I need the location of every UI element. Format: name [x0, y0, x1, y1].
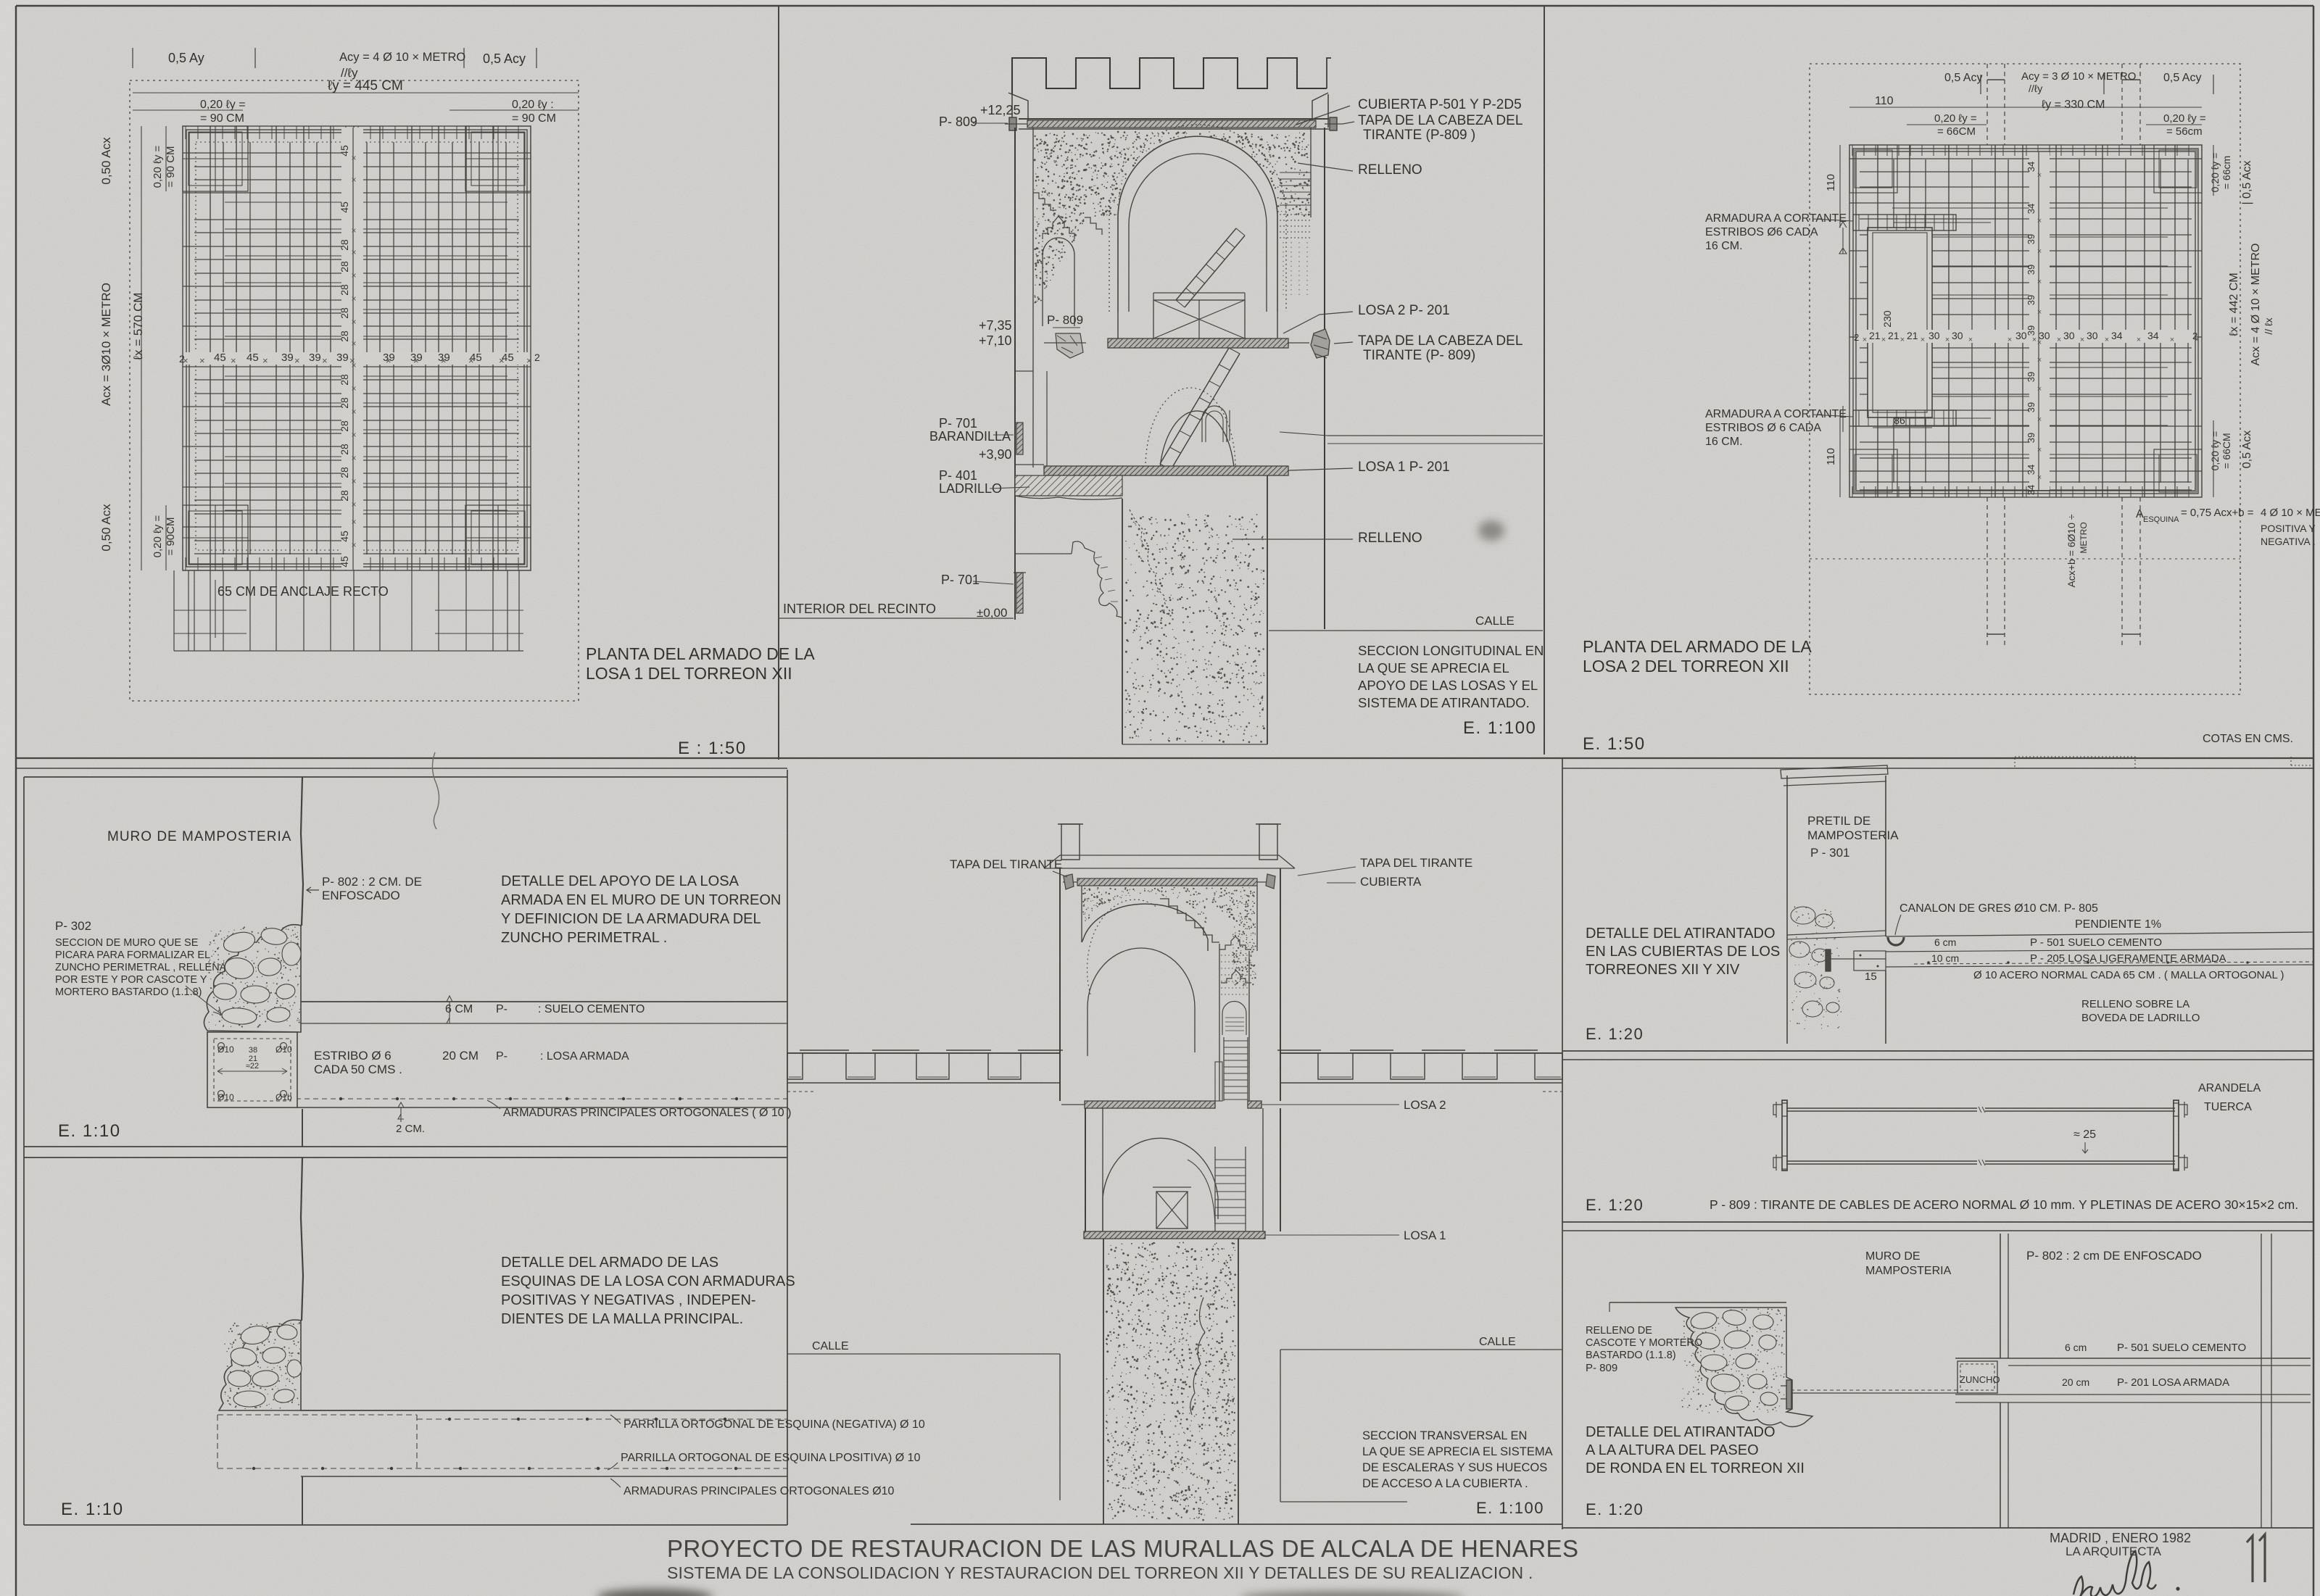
- svg-text:0,20 ℓy =: 0,20 ℓy =: [2163, 112, 2206, 125]
- svg-text:= 66CM: = 66CM: [1937, 125, 1976, 138]
- svg-text:DETALLE DEL ATIRANTADO: DETALLE DEL ATIRANTADO: [1586, 926, 1776, 942]
- svg-text:110: 110: [1825, 448, 1837, 465]
- svg-text:45: 45: [339, 145, 350, 157]
- svg-text:±0,00: ±0,00: [977, 606, 1007, 620]
- svg-text:≈ 25: ≈ 25: [2073, 1129, 2096, 1141]
- svg-text:CUBIERTA P-501 Y P-2D5: CUBIERTA P-501 Y P-2D5: [1358, 97, 1522, 112]
- svg-text:= 90 CM: = 90 CM: [512, 112, 556, 125]
- svg-text:DETALLE DEL APOYO DE LA L: DETALLE DEL APOYO DE LA LOSA: [501, 873, 739, 889]
- svg-text:0,5 Acy: 0,5 Acy: [483, 51, 526, 66]
- svg-text:×: ×: [2037, 217, 2042, 225]
- svg-text:TAPA DEL TIRANTE: TAPA DEL TIRANTE: [1360, 856, 1472, 870]
- svg-text:BOVEDA DE LADRILLO: BOVEDA DE LADRILLO: [2081, 1012, 2200, 1024]
- svg-text:2: 2: [534, 352, 540, 363]
- svg-text:0,20 ℓy =: 0,20 ℓy =: [2209, 431, 2221, 471]
- svg-text:×: ×: [1881, 336, 1886, 344]
- svg-text:RELLENO: RELLENO: [1358, 531, 1422, 546]
- svg-text:P - 301: P - 301: [1810, 846, 1850, 860]
- svg-text:PARRILLA ORTOGONAL DE ESQUI: PARRILLA ORTOGONAL DE ESQUINA (NEGATIVA)…: [623, 1418, 925, 1431]
- svg-text:PICARA PARA FORMALIZAR EL: PICARA PARA FORMALIZAR EL: [55, 949, 210, 961]
- svg-text:SECCION DE MURO QUE SE: SECCION DE MURO QUE SE: [55, 937, 199, 949]
- svg-text:28: 28: [339, 420, 350, 432]
- svg-text:45: 45: [214, 352, 226, 364]
- svg-text:APOYO DE LAS LOSAS Y EL: APOYO DE LAS LOSAS Y EL: [1358, 678, 1538, 693]
- svg-text:EN LAS CUBIERTAS DE LOS: EN LAS CUBIERTAS DE LOS: [1586, 944, 1780, 960]
- svg-text:20 CM: 20 CM: [442, 1049, 478, 1063]
- svg-text:METRO: METRO: [2079, 522, 2089, 553]
- svg-text:E. 1:20: E. 1:20: [1586, 1025, 1644, 1043]
- svg-text:Y DEFINICION DE LA ARMADUR: Y DEFINICION DE LA ARMADURA DEL: [501, 911, 761, 927]
- svg-text:ESQUINAS DE LA LOSA CON A: ESQUINAS DE LA LOSA CON ARMADURAS: [501, 1273, 795, 1289]
- svg-text:21: 21: [1869, 330, 1881, 341]
- svg-text:= 66cm: = 66cm: [2221, 156, 2232, 189]
- svg-text:×: ×: [1900, 336, 1905, 344]
- svg-text:0,5 Acy: 0,5 Acy: [1944, 72, 1982, 84]
- svg-text:×: ×: [2037, 473, 2042, 482]
- svg-text:45: 45: [246, 352, 259, 364]
- svg-text:ESTRIBO Ø 6: ESTRIBO Ø 6: [314, 1049, 391, 1063]
- svg-text:P-: P-: [496, 1003, 507, 1015]
- svg-text:Ø1b: Ø1b: [275, 1092, 292, 1102]
- svg-text:ℓx = 442 CM: ℓx = 442 CM: [2228, 273, 2240, 336]
- svg-text:×: ×: [2037, 385, 2042, 394]
- svg-text:PARRILLA ORTOGONAL DE ESQUI: PARRILLA ORTOGONAL DE ESQUINA LPOSITIVA)…: [621, 1452, 921, 1464]
- svg-text:30: 30: [2063, 330, 2075, 341]
- svg-text:Ø 10 ACERO NORMAL CADA 65: Ø 10 ACERO NORMAL CADA 65 CM . ( MALLA O…: [1973, 969, 2284, 981]
- svg-text:SISTEMA DE ATIRANTADO.: SISTEMA DE ATIRANTADO.: [1358, 695, 1530, 710]
- svg-text:45: 45: [339, 531, 350, 542]
- svg-text:×: ×: [1945, 336, 1950, 344]
- svg-text:39: 39: [2026, 265, 2037, 275]
- svg-text:POR ESTE Y POR CASCOTE Y: POR ESTE Y POR CASCOTE Y: [55, 974, 207, 986]
- svg-text:0,20 ℓy =: 0,20 ℓy =: [1934, 112, 1977, 125]
- svg-text:ℓy = 330 CM: ℓy = 330 CM: [2042, 99, 2105, 111]
- svg-text:×: ×: [2008, 336, 2012, 344]
- svg-text:DIENTES DE LA MALLA PRINCI: DIENTES DE LA MALLA PRINCIPAL.: [501, 1311, 743, 1327]
- svg-text:PLANTA DEL ARMADO DE LA: PLANTA DEL ARMADO DE LA: [586, 644, 815, 663]
- svg-text:+7,10: +7,10: [979, 333, 1012, 348]
- svg-text:ARMADURA A CORTANTE: ARMADURA A CORTANTE: [1705, 212, 1847, 225]
- svg-text:45: 45: [339, 201, 350, 213]
- svg-text:×: ×: [351, 540, 356, 550]
- svg-text:34: 34: [2026, 465, 2037, 475]
- svg-text:P- 809: P- 809: [1047, 313, 1083, 327]
- svg-text:DETALLE DEL ARMADO DE LAS: DETALLE DEL ARMADO DE LAS: [501, 1255, 718, 1271]
- svg-text:2: 2: [1854, 332, 1859, 343]
- svg-text:TIRANTE (P- 809): TIRANTE (P- 809): [1363, 348, 1475, 363]
- svg-text:P - 205 LOSA LIGERAMENTE: P - 205 LOSA LIGERAMENTE ARMADA: [2030, 952, 2226, 965]
- svg-text:Acy = 3 Ø 10 × METRO: Acy = 3 Ø 10 × METRO: [2021, 70, 2136, 83]
- svg-text:E. 1:10: E. 1:10: [61, 1500, 124, 1519]
- svg-text:×: ×: [2032, 336, 2037, 344]
- svg-text:×: ×: [1921, 336, 1925, 344]
- svg-text:CALLE: CALLE: [1475, 614, 1515, 628]
- svg-text:×: ×: [351, 453, 356, 463]
- svg-text:SECCION LONGITUDINAL EN: SECCION LONGITUDINAL EN: [1358, 643, 1544, 658]
- svg-text:30: 30: [1928, 330, 1940, 341]
- svg-text:E. 1:50: E. 1:50: [1583, 734, 1646, 754]
- svg-text:39: 39: [2026, 295, 2037, 305]
- svg-text:28: 28: [339, 239, 350, 251]
- svg-text:×: ×: [351, 430, 356, 440]
- svg-text:P- 802 : 2 CM. DE: P- 802 : 2 CM. DE: [322, 875, 422, 889]
- svg-text:ARMADA EN EL MURO DE UN T: ARMADA EN EL MURO DE UN TORREON: [501, 892, 781, 908]
- svg-text:×: ×: [2080, 336, 2084, 344]
- svg-text:+7,35: +7,35: [979, 318, 1012, 333]
- svg-text:BARANDILLA: BARANDILLA: [929, 429, 1011, 444]
- svg-text:Ø10: Ø10: [275, 1044, 292, 1055]
- svg-text:0,50 Acx: 0,50 Acx: [99, 137, 113, 185]
- svg-text:DE ACCESO A LA CUBIERTA .: DE ACCESO A LA CUBIERTA .: [1362, 1477, 1528, 1490]
- svg-text:28: 28: [339, 261, 350, 273]
- svg-text:×: ×: [2037, 308, 2042, 317]
- svg-text:×: ×: [351, 270, 356, 280]
- svg-text:RELLENO: RELLENO: [1358, 162, 1422, 178]
- svg-text:E : 1:50: E : 1:50: [678, 739, 747, 758]
- svg-text:LOSA 2 DEL TORREON XII: LOSA 2 DEL TORREON XII: [1583, 657, 1789, 676]
- svg-text:×: ×: [2037, 171, 2042, 180]
- svg-text:28: 28: [339, 444, 350, 455]
- svg-text:TAPA DE LA CABEZA DEL: TAPA DE LA CABEZA DEL: [1358, 113, 1522, 128]
- svg-text:0,20 ℓy :: 0,20 ℓy :: [512, 99, 554, 111]
- svg-text:4 Ø 10 × METRO: 4 Ø 10 × METRO: [2261, 507, 2320, 519]
- svg-text:×: ×: [468, 355, 474, 366]
- svg-text:34: 34: [2026, 485, 2037, 495]
- svg-text:ARMADURAS PRINCIPALES ORTOG: ARMADURAS PRINCIPALES ORTOGONALES ( Ø 10…: [503, 1107, 791, 1119]
- svg-text:INTERIOR DEL RECINTO: INTERIOR DEL RECINTO: [783, 602, 936, 616]
- svg-text:CUBIERTA: CUBIERTA: [1360, 875, 1422, 889]
- svg-text:= 56cm: = 56cm: [2166, 125, 2203, 138]
- svg-text:30: 30: [1952, 330, 1963, 341]
- svg-text:×: ×: [351, 383, 356, 394]
- svg-text:= 90 CM: = 90 CM: [165, 146, 177, 187]
- svg-text:×: ×: [499, 355, 505, 366]
- svg-text:E. 1:10: E. 1:10: [58, 1121, 121, 1141]
- svg-text:MAMPOSTERIA: MAMPOSTERIA: [1807, 828, 1899, 842]
- svg-text:POSITIVA Y: POSITIVA Y: [2261, 523, 2316, 534]
- svg-text:0,5 Ay: 0,5 Ay: [168, 51, 204, 65]
- svg-text:NEGATIVA .: NEGATIVA .: [2261, 536, 2316, 547]
- svg-text:×: ×: [351, 407, 356, 417]
- svg-text:ESTRIBOS Ø 6 CADA: ESTRIBOS Ø 6 CADA: [1705, 422, 1821, 434]
- svg-text:×: ×: [1863, 336, 1867, 344]
- svg-text:Acx+b = 6Ø10 ÷: Acx+b = 6Ø10 ÷: [2066, 514, 2077, 587]
- svg-text:30: 30: [2087, 330, 2098, 341]
- svg-text:×: ×: [2137, 336, 2141, 344]
- svg-text:28: 28: [339, 490, 350, 502]
- svg-text:39: 39: [2026, 234, 2037, 244]
- svg-text:39: 39: [2026, 372, 2037, 382]
- svg-text:+3,90: +3,90: [979, 447, 1012, 462]
- svg-text:P - 809 : TIRANTE DE CABLE: P - 809 : TIRANTE DE CABLES DE ACERO NOR…: [1710, 1197, 2298, 1212]
- svg-text:×: ×: [231, 355, 236, 366]
- svg-text:28: 28: [339, 284, 350, 296]
- svg-text:39: 39: [281, 352, 294, 364]
- svg-text:Acx = 3Ø10 × METRO: Acx = 3Ø10 × METRO: [99, 283, 113, 406]
- svg-text:ESTRIBOS Ø6 CADA: ESTRIBOS Ø6 CADA: [1705, 226, 1818, 238]
- svg-text:110: 110: [1875, 95, 1894, 107]
- svg-text:0,5 Acx: 0,5 Acx: [2241, 431, 2253, 468]
- svg-text:110: 110: [1825, 174, 1837, 191]
- svg-text:MURO DE MAMPOSTERIA: MURO DE MAMPOSTERIA: [107, 829, 291, 844]
- svg-text:×: ×: [2037, 415, 2042, 424]
- svg-text:×: ×: [2057, 336, 2061, 344]
- svg-text:LOSA 1: LOSA 1: [1404, 1229, 1446, 1242]
- svg-text:CANALON DE GRES Ø10 CM. P: CANALON DE GRES Ø10 CM. P- 805: [1899, 902, 2098, 915]
- svg-text:0,20 ℓy =: 0,20 ℓy =: [2209, 153, 2221, 193]
- svg-text:0,50 Acx: 0,50 Acx: [99, 504, 113, 552]
- svg-text:34: 34: [2111, 330, 2123, 341]
- svg-text:6 cm: 6 cm: [1934, 936, 1956, 948]
- svg-text:LA QUE SE APRECIA EL SIST: LA QUE SE APRECIA EL SISTEMA: [1362, 1445, 1553, 1458]
- svg-text:28: 28: [339, 307, 350, 319]
- svg-text:E. 1:100: E. 1:100: [1476, 1499, 1544, 1517]
- svg-text:LOSA 2 P- 201: LOSA 2 P- 201: [1358, 303, 1450, 318]
- svg-text:PLANTA DEL ARMADO DE LA: PLANTA DEL ARMADO DE LA: [1583, 637, 1812, 656]
- svg-text:28: 28: [339, 331, 350, 342]
- svg-text:34: 34: [2026, 204, 2037, 214]
- svg-text:CALLE: CALLE: [1479, 1336, 1516, 1348]
- svg-text:= 90 CM: = 90 CM: [200, 112, 244, 125]
- svg-text:P- 701: P- 701: [941, 573, 979, 587]
- svg-text:LOSA 2: LOSA 2: [1404, 1098, 1446, 1112]
- svg-text:Ø10: Ø10: [217, 1092, 234, 1102]
- svg-text:×: ×: [183, 355, 188, 366]
- svg-text:= 0,75 Acx+b =: = 0,75 Acx+b =: [2181, 507, 2254, 519]
- svg-text:CADA 50 CMS .: CADA 50 CMS .: [314, 1063, 402, 1076]
- svg-text:P- 701: P- 701: [939, 416, 977, 431]
- svg-text:P- 302: P- 302: [55, 919, 91, 933]
- svg-text:ℓy = 445 CM: ℓy = 445 CM: [328, 78, 403, 93]
- svg-text:SECCION TRANSVERSAL EN: SECCION TRANSVERSAL EN: [1362, 1429, 1527, 1442]
- svg-text:Acx = 4 Ø 10 × METRO: Acx = 4 Ø 10 × METRO: [2250, 244, 2262, 366]
- svg-text:×: ×: [2170, 336, 2174, 344]
- svg-text:ZUNCHO PERIMETRAL .: ZUNCHO PERIMETRAL .: [501, 930, 667, 946]
- svg-text:45: 45: [339, 556, 350, 568]
- svg-text:MORTERO BASTARDO (1.1.8): MORTERO BASTARDO (1.1.8): [55, 986, 202, 998]
- svg-text:10 cm: 10 cm: [1931, 952, 1959, 964]
- svg-text:×: ×: [351, 175, 356, 185]
- svg-text:×: ×: [2037, 356, 2042, 365]
- svg-text:// ℓx: // ℓx: [2263, 317, 2274, 334]
- svg-text:21: 21: [1888, 330, 1899, 341]
- svg-text:LOSA 1 P- 201: LOSA 1 P- 201: [1358, 460, 1450, 475]
- svg-text:×: ×: [351, 294, 356, 304]
- svg-text:×: ×: [351, 225, 356, 236]
- svg-text:39: 39: [2026, 402, 2037, 412]
- svg-text:16 CM.: 16 CM.: [1705, 436, 1743, 448]
- svg-text:×: ×: [526, 355, 532, 366]
- svg-text:TORREONES XII Y XIV: TORREONES XII Y XIV: [1586, 962, 1740, 978]
- svg-text:28: 28: [339, 467, 350, 478]
- svg-text://ℓy: //ℓy: [2029, 83, 2042, 94]
- svg-text:×: ×: [199, 355, 205, 366]
- svg-text:DE ESCALERAS Y SUS HUECOS: DE ESCALERAS Y SUS HUECOS: [1362, 1461, 1547, 1474]
- svg-text:×: ×: [2195, 336, 2199, 344]
- svg-text:P - 501 SUELO CEMENTO: P - 501 SUELO CEMENTO: [2030, 936, 2162, 949]
- svg-text:0,20 ℓy =: 0,20 ℓy =: [152, 515, 164, 557]
- svg-text:×: ×: [351, 317, 356, 327]
- svg-text:34: 34: [2147, 330, 2159, 341]
- svg-text:×: ×: [2037, 446, 2042, 454]
- svg-text:PRETIL DE: PRETIL DE: [1807, 814, 1870, 828]
- svg-text:16 CM.: 16 CM.: [1705, 240, 1743, 252]
- svg-text:×: ×: [1968, 336, 1973, 344]
- svg-text:LA QUE SE APRECIA EL: LA QUE SE APRECIA EL: [1358, 660, 1509, 676]
- svg-text:6 CM: 6 CM: [445, 1003, 473, 1015]
- svg-text:ENFOSCADO: ENFOSCADO: [322, 889, 400, 902]
- svg-text:×: ×: [294, 355, 300, 366]
- svg-text:TIRANTE (P-809 ): TIRANTE (P-809 ): [1363, 128, 1475, 143]
- svg-text:RELLENO SOBRE LA: RELLENO SOBRE LA: [2081, 998, 2189, 1010]
- svg-text:×: ×: [413, 355, 419, 366]
- svg-text:×: ×: [386, 355, 391, 366]
- svg-text:LOSA 1 DEL TORREON XII: LOSA 1 DEL TORREON XII: [586, 664, 792, 683]
- svg-text:×: ×: [262, 355, 268, 366]
- svg-text:2 CM.: 2 CM.: [396, 1123, 425, 1135]
- svg-text:×: ×: [351, 499, 356, 510]
- svg-text:P- 401: P- 401: [939, 468, 977, 483]
- svg-text:E. 1:20: E. 1:20: [1586, 1196, 1644, 1214]
- svg-text:×: ×: [351, 247, 356, 257]
- svg-text:: SUELO CEMENTO: : SUELO CEMENTO: [538, 1003, 645, 1015]
- svg-text:POSITIVAS Y NEGATIVAS , INDE: POSITIVAS Y NEGATIVAS , INDEPEN-: [501, 1292, 756, 1308]
- svg-text:≈22: ≈22: [246, 1062, 259, 1071]
- svg-text:TUERCA: TUERCA: [2204, 1101, 2252, 1113]
- svg-text:0,5 Acy: 0,5 Acy: [2163, 72, 2201, 84]
- svg-text:28: 28: [339, 397, 350, 409]
- svg-text:39: 39: [2026, 325, 2037, 336]
- svg-text:×: ×: [2037, 278, 2042, 286]
- svg-text:0,20 ℓy =: 0,20 ℓy =: [152, 145, 164, 188]
- svg-text:ℓx = 570 CM: ℓx = 570 CM: [131, 293, 145, 361]
- svg-text:TAPA DE LA CABEZA DEL: TAPA DE LA CABEZA DEL: [1358, 333, 1522, 349]
- svg-text:= 66CM: = 66CM: [2221, 433, 2232, 468]
- svg-text:E. 1:100: E. 1:100: [1463, 718, 1536, 738]
- svg-text:Ø10: Ø10: [217, 1044, 234, 1055]
- svg-text:×: ×: [2037, 338, 2042, 347]
- svg-text:+12,25: +12,25: [980, 103, 1021, 117]
- svg-text:39: 39: [309, 352, 321, 364]
- svg-text:86: 86: [1894, 415, 1905, 426]
- svg-text:P- 809: P- 809: [939, 115, 977, 129]
- svg-text:×: ×: [351, 153, 356, 163]
- svg-text:38: 38: [249, 1046, 257, 1055]
- svg-text:Acy = 4 Ø 10 × METRO: Acy = 4 Ø 10 × METRO: [339, 51, 465, 64]
- svg-text:ARMADURA A CORTANTE: ARMADURA A CORTANTE: [1705, 408, 1847, 420]
- svg-text:ARANDELA: ARANDELA: [2198, 1082, 2261, 1094]
- svg-text:TAPA DEL TIRANTE: TAPA DEL TIRANTE: [950, 857, 1062, 871]
- svg-text:×: ×: [351, 517, 356, 527]
- svg-text:| 0,5 Acx: | 0,5 Acx: [2241, 160, 2253, 204]
- svg-text:ZUNCHO PERIMETRAL , RELLENA: ZUNCHO PERIMETRAL , RELLENA: [55, 962, 227, 973]
- svg-text:ARMADURAS PRINCIPALES ORTOGO: ARMADURAS PRINCIPALES ORTOGONALES Ø10: [623, 1485, 895, 1497]
- svg-text:×: ×: [441, 355, 447, 366]
- svg-text:21: 21: [1907, 330, 1918, 341]
- svg-text:COTAS EN CMS.: COTAS EN CMS.: [2203, 733, 2293, 745]
- svg-text:×: ×: [351, 338, 356, 349]
- svg-text:×: ×: [2037, 247, 2042, 256]
- svg-text:ESQUINA: ESQUINA: [2143, 515, 2179, 524]
- svg-text:39: 39: [336, 352, 349, 364]
- svg-text:×: ×: [322, 355, 328, 366]
- svg-text:15: 15: [1865, 971, 1877, 983]
- svg-text:230: 230: [1881, 310, 1893, 328]
- svg-text:= 90CM: = 90CM: [165, 518, 177, 556]
- svg-text:34: 34: [2026, 162, 2037, 172]
- svg-text:: LOSA ARMADA: : LOSA ARMADA: [540, 1050, 629, 1063]
- svg-text:×: ×: [2105, 336, 2109, 344]
- svg-text:39: 39: [2026, 433, 2037, 443]
- svg-text:×: ×: [351, 360, 356, 370]
- svg-text:CALLE: CALLE: [812, 1340, 849, 1352]
- svg-text:0,20 ℓy =: 0,20 ℓy =: [200, 99, 246, 111]
- svg-text:65 CM DE ANCLAJE RECTO: 65 CM DE ANCLAJE RECTO: [217, 584, 389, 599]
- svg-text:28: 28: [339, 374, 350, 386]
- svg-text:×: ×: [351, 476, 356, 486]
- svg-text:PENDIENTE 1%: PENDIENTE 1%: [2075, 918, 2161, 931]
- svg-text:P-: P-: [496, 1050, 507, 1063]
